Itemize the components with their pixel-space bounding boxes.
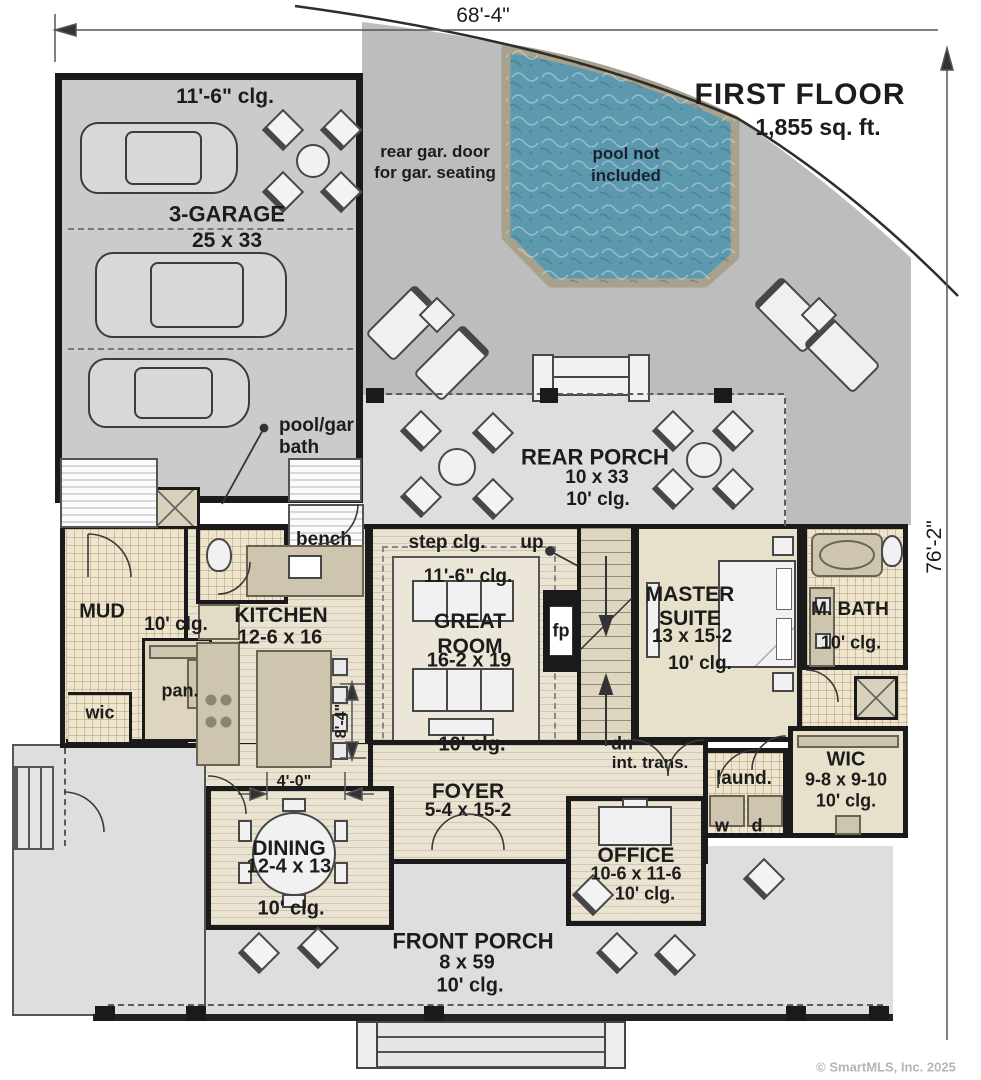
great-room-size: 16-2 x 19: [427, 650, 512, 673]
porch-table: [686, 442, 722, 478]
hall-clg: 10' clg.: [144, 614, 208, 636]
copyright: © SmartMLS, Inc. 2025: [816, 1061, 956, 1076]
front-steps: [356, 1021, 626, 1069]
kitchen-sink: [288, 555, 322, 579]
master-suite-size: 13 x 15-2: [652, 626, 732, 648]
front-porch-clg: 10' clg.: [436, 975, 503, 998]
kitchen-name: KITCHEN: [234, 604, 327, 628]
note-pool: pool not included: [576, 143, 676, 187]
dining-chair: [238, 820, 252, 842]
great-room-clg2: 10' clg.: [438, 734, 505, 757]
tub-basin: [819, 540, 875, 570]
plan-title: FIRST FLOOR: [695, 78, 906, 113]
toilet: [881, 535, 903, 567]
garage-table: [296, 144, 330, 178]
dining-clg: 10' clg.: [257, 898, 324, 921]
laundry-name: laund.: [716, 768, 772, 790]
side-porch-dash: [64, 748, 66, 846]
bed-pillow: [776, 568, 792, 610]
sofa: [412, 668, 514, 712]
car: [80, 122, 238, 194]
note-fp: fp: [553, 621, 570, 642]
front-porch-edge-wall: [93, 1014, 893, 1021]
dining-chair: [334, 820, 348, 842]
garage-name: 3-GARAGE: [169, 201, 285, 226]
rear-porch-right-dash: [784, 398, 786, 526]
garage-door-opening: [288, 458, 362, 502]
front-porch-size: 8 x 59: [439, 952, 495, 975]
great-room-clg: 11'-6" clg.: [424, 566, 513, 588]
porch-column: [786, 1006, 806, 1021]
dining-chair: [334, 862, 348, 884]
bathtub: [811, 533, 883, 577]
bed-pillow: [776, 618, 792, 660]
dim-overall-depth: 76'-2": [923, 520, 947, 574]
washer-label: w: [715, 816, 729, 837]
porch-column: [714, 388, 732, 403]
porch-column: [95, 1006, 115, 1021]
kitchen-size: 12-6 x 16: [238, 627, 323, 650]
kitchen-counter-top: [246, 545, 364, 597]
wic-clg: 10' clg.: [816, 791, 876, 812]
cooktop: [203, 690, 233, 734]
nightstand: [772, 672, 794, 692]
office-desk: [598, 806, 672, 846]
rear-porch-clg: 10' clg.: [566, 489, 630, 511]
dryer-label: d: [752, 816, 763, 837]
floor-plan: FIRST FLOOR 1,855 sq. ft. 68'-4" 76'-2" …: [0, 0, 981, 1080]
office-desk-chair: [622, 798, 648, 808]
garage-clg: 11'-6" clg.: [176, 85, 274, 109]
wic-shelf: [797, 735, 899, 748]
note-up: up: [520, 532, 543, 554]
note-rear-gar-door: rear gar. door for gar. seating: [368, 141, 502, 184]
note-int-trans: int. trans.: [612, 753, 689, 773]
office-clg: 10' clg.: [615, 884, 675, 905]
wic-size: 9-8 x 9-10: [805, 770, 887, 791]
dim-island: 8'-4": [333, 704, 351, 739]
linen-closet: [854, 676, 898, 720]
wic-shelf: [835, 815, 861, 835]
plan-area: 1,855 sq. ft.: [755, 114, 880, 140]
porch-column: [366, 388, 384, 403]
front-porch-name: FRONT PORCH: [392, 928, 553, 953]
note-step-clg: step clg.: [408, 532, 485, 554]
front-steps-left-rail: [358, 1023, 378, 1067]
staircase: [577, 524, 635, 750]
porch-column: [186, 1006, 206, 1021]
kitchen-island: [256, 650, 332, 768]
master-suite-name: MASTER SUITE: [636, 583, 744, 631]
rear-porch-name: REAR PORCH: [521, 444, 669, 469]
note-bench: bench: [296, 529, 352, 551]
wic-name: WIC: [827, 749, 866, 772]
porch-table: [438, 448, 476, 486]
dining-chair: [282, 798, 306, 812]
car: [88, 358, 250, 428]
porch-column: [869, 1006, 889, 1021]
note-dn: dn: [611, 734, 633, 755]
garage-stall-dash: [68, 348, 353, 350]
porch-column: [540, 388, 558, 403]
car: [95, 252, 287, 338]
dim-dining-opening: 4'-0": [277, 773, 312, 791]
island-stool: [332, 658, 348, 676]
office-size: 10-6 x 11-6: [590, 864, 681, 885]
dim-overall-width: 68'-4": [456, 4, 510, 28]
front-porch-dash: [108, 1004, 883, 1006]
mud-name: MUD: [79, 601, 125, 624]
front-steps-right-rail: [604, 1023, 624, 1067]
toilet: [206, 538, 232, 572]
garage-door-opening: [60, 458, 158, 528]
pantry-name: pan.: [161, 681, 198, 702]
wic-small-name: wic: [85, 703, 114, 724]
island-stool: [332, 742, 348, 760]
side-porch-steps: [14, 766, 54, 850]
master-bath-name: M. BATH: [811, 599, 889, 621]
island-stool: [332, 686, 348, 704]
porch-column: [424, 1006, 444, 1021]
garage-size: 25 x 33: [192, 229, 262, 253]
foyer-size: 5-4 x 15-2: [425, 800, 512, 822]
master-bath-clg: 10' clg.: [821, 633, 881, 654]
master-suite-clg: 10' clg.: [668, 653, 732, 675]
rear-porch-size: 10 x 33: [565, 467, 628, 489]
note-pool-gar-bath: pool/gar bath: [279, 415, 371, 459]
dining-size: 12-4 x 13: [247, 856, 332, 879]
nightstand: [772, 536, 794, 556]
